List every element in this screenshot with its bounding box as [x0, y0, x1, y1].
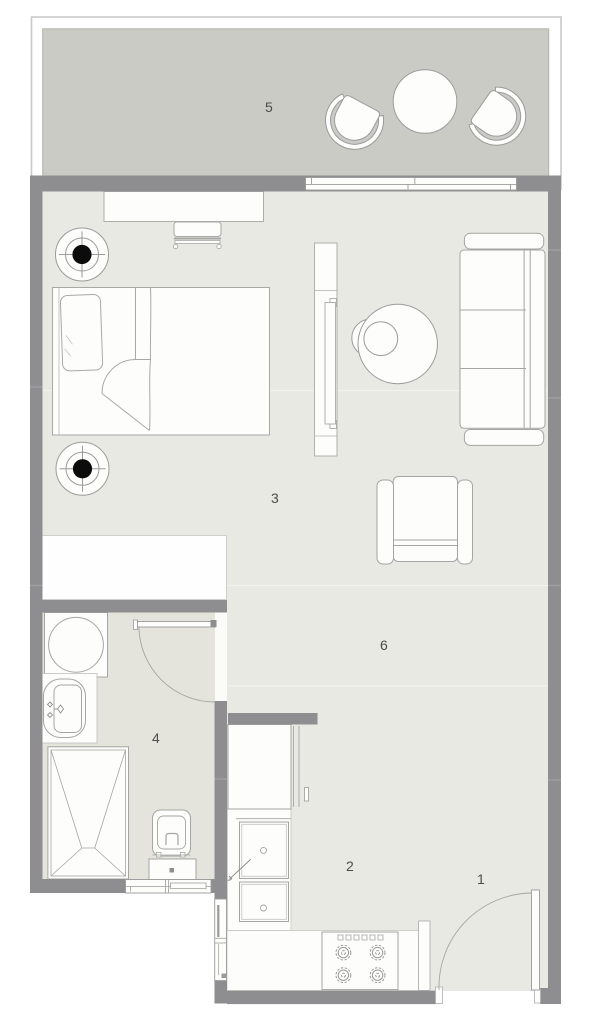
svg-text:5: 5 — [265, 99, 273, 115]
svg-text:6: 6 — [380, 637, 388, 653]
svg-text:2: 2 — [346, 858, 354, 874]
svg-text:4: 4 — [152, 730, 160, 746]
svg-text:1: 1 — [477, 871, 485, 887]
svg-text:3: 3 — [271, 490, 279, 506]
